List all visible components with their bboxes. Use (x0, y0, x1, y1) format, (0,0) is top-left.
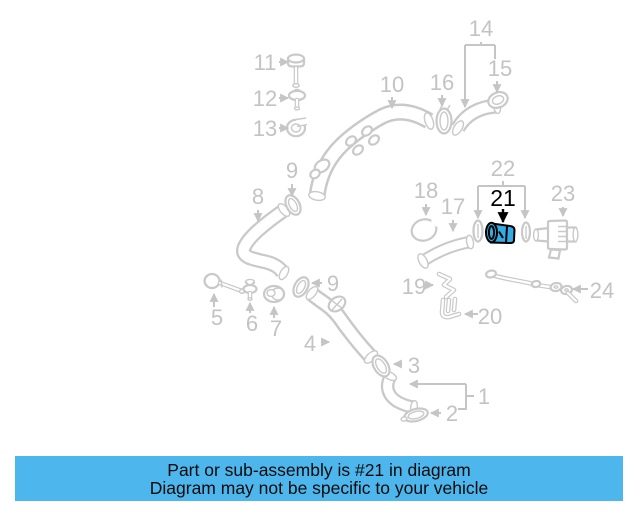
bolt-11 (288, 55, 304, 88)
part-label-9-upper: 9 (286, 158, 298, 183)
clamp-16 (437, 104, 452, 134)
part-label-22: 22 (491, 156, 515, 181)
screw-6 (244, 279, 257, 300)
part-label-20: 20 (478, 304, 502, 329)
part-label-15: 15 (488, 56, 512, 81)
diagram-canvas: 11 12 13 14 15 16 10 9 8 18 17 (0, 0, 640, 512)
part-label-6: 6 (246, 311, 258, 336)
part-label-7: 7 (270, 316, 282, 341)
callout-9-upper: 9 (286, 158, 298, 196)
thermostat-23 (534, 221, 578, 259)
callout-16: 16 (430, 70, 454, 106)
part-label-8: 8 (252, 184, 264, 209)
callout-20: 20 (465, 304, 502, 329)
grommet-7 (264, 286, 285, 302)
screw-12 (289, 90, 305, 110)
part-label-18: 18 (414, 178, 438, 203)
callout-19: 19 (402, 274, 433, 299)
part-label-12: 12 (253, 86, 277, 111)
part-label-9-lower: 9 (327, 271, 339, 296)
part-label-23: 23 (551, 181, 575, 206)
callout-6: 6 (246, 303, 258, 336)
caption-line-1: Part or sub-assembly is #21 in diagram (167, 460, 470, 480)
part-label-17: 17 (441, 194, 465, 219)
callout-5: 5 (211, 294, 223, 330)
part-label-11: 11 (254, 50, 277, 75)
callout-21: 21 (490, 185, 516, 222)
hose-loop-18 (409, 216, 439, 244)
clip-nut-13 (287, 118, 308, 137)
callout-15: 15 (488, 56, 512, 92)
callout-24: 24 (573, 278, 614, 303)
callout-8: 8 (252, 184, 264, 221)
callout-23: 23 (551, 181, 575, 216)
callout-13: 13 (253, 116, 288, 141)
callout-7: 7 (270, 307, 282, 341)
part-label-3: 3 (408, 353, 420, 378)
part-label-10: 10 (380, 72, 404, 97)
part-label-16: 16 (430, 70, 454, 95)
clamp-22-left (474, 221, 483, 242)
hose-8 (244, 202, 292, 281)
clip-20 (442, 299, 459, 317)
clip-19 (439, 274, 454, 297)
highlighted-part-21 (486, 223, 515, 243)
callout-11: 11 (254, 50, 288, 75)
part-label-4: 4 (304, 331, 316, 356)
bracket-rod-24 (485, 270, 576, 301)
callout-10: 10 (380, 72, 404, 108)
caption-line-2: Diagram may not be specific to your vehi… (150, 478, 488, 498)
caption-bar: Part or sub-assembly is #21 in diagram D… (15, 456, 623, 501)
callout-3: 3 (394, 353, 420, 378)
part-label-19: 19 (402, 274, 426, 299)
part-label-14: 14 (469, 16, 493, 41)
bolt-5 (205, 274, 247, 294)
clamp-22-right (522, 223, 530, 242)
parts-diagram: 11 12 13 14 15 16 10 9 8 18 17 (0, 0, 640, 512)
callout-2: 2 (431, 401, 458, 426)
callout-12: 12 (253, 86, 288, 111)
part-label-21: 21 (490, 185, 516, 211)
part-label-2: 2 (446, 401, 458, 426)
part-label-13: 13 (253, 116, 277, 141)
callout-17: 17 (441, 194, 465, 231)
part-label-5: 5 (211, 305, 223, 330)
part-label-1: 1 (478, 384, 490, 409)
part-label-24: 24 (590, 278, 614, 303)
callout-4: 4 (304, 331, 329, 356)
callout-18: 18 (414, 178, 438, 215)
